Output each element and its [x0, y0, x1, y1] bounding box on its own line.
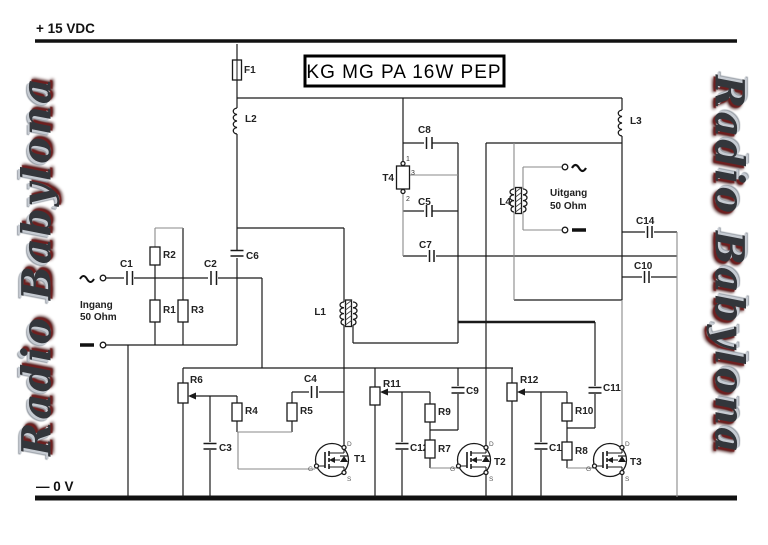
- schematic-title: KG MG PA 16W PEP: [306, 62, 501, 83]
- label-r10: R10: [575, 406, 594, 417]
- transformer-l4: [510, 188, 527, 214]
- label-l3: L3: [630, 116, 642, 127]
- resistor-r2: [150, 247, 160, 265]
- mosfet-t3: [593, 444, 627, 477]
- resistor-r4: [232, 403, 242, 421]
- power-rails: [35, 41, 737, 498]
- capacitor-c13: [535, 444, 548, 450]
- capacitor-c4: [312, 386, 318, 398]
- label-c10: C10: [634, 261, 653, 272]
- capacitor-c6: [231, 251, 244, 257]
- label-c2: C2: [204, 259, 217, 270]
- capacitor-c2: [211, 271, 217, 285]
- resistor-r5: [287, 403, 297, 421]
- label-t4: T4: [382, 173, 394, 184]
- label-c3: C3: [219, 443, 232, 454]
- capacitor-c1: [127, 271, 133, 285]
- label-c1: C1: [120, 259, 133, 270]
- capacitor-c9: [452, 388, 465, 394]
- input-label-line2: 50 Ohm: [80, 312, 117, 323]
- input-label-line1: Ingang: [80, 300, 113, 311]
- fuse-f1: [233, 60, 242, 80]
- label-c8: C8: [418, 125, 431, 136]
- t3-pin-g: G: [586, 466, 591, 473]
- t2-pin-d: D: [489, 441, 494, 448]
- resistor-r9: [425, 404, 435, 422]
- label-t3: T3: [630, 457, 642, 468]
- mosfet-t2: [457, 444, 491, 477]
- rail-label-0v: — 0 V: [36, 479, 74, 494]
- t4-pin-3: 3: [411, 170, 415, 177]
- t3-pin-s: S: [625, 476, 630, 483]
- t3-pin-d: D: [625, 441, 630, 448]
- capacitor-c12: [396, 444, 409, 450]
- resistor-r1: [150, 300, 160, 322]
- label-c5: C5: [418, 197, 431, 208]
- label-r9: R9: [438, 407, 451, 418]
- resistor-r7: [425, 440, 435, 458]
- t1-pin-s: S: [347, 476, 352, 483]
- capacitor-c8: [427, 137, 433, 149]
- label-c9: C9: [466, 386, 479, 397]
- label-c14: C14: [636, 216, 655, 227]
- rail-label-15vdc: + 15 VDC: [36, 21, 95, 36]
- label-r7: R7: [438, 444, 451, 455]
- capacitor-c14: [648, 226, 653, 238]
- schematic-page: Radio Babylona Radio Babylona + 15 VDC —…: [0, 0, 768, 545]
- output-label-line2: 50 Ohm: [550, 201, 587, 212]
- transformer-l1: [340, 300, 357, 327]
- label-r4: R4: [245, 406, 258, 417]
- inductor-l2: [233, 108, 237, 134]
- potentiometer-r6: [178, 383, 196, 403]
- t2-pin-g: G: [450, 466, 455, 473]
- capacitor-c3: [204, 444, 217, 450]
- label-c6: C6: [246, 251, 259, 262]
- output-label-line1: Uitgang: [550, 188, 587, 199]
- circuit-wires: [105, 44, 677, 497]
- label-f1: F1: [244, 65, 256, 76]
- capacitor-c7: [430, 250, 435, 262]
- label-r6: R6: [190, 375, 203, 386]
- label-c11: C11: [603, 383, 621, 394]
- label-r12: R12: [520, 375, 539, 386]
- label-l4: L4: [499, 197, 511, 208]
- t4-pin-2: 2: [406, 196, 410, 203]
- device-t4: [397, 162, 410, 194]
- label-c7: C7: [419, 240, 432, 251]
- capacitor-c11: [589, 388, 602, 394]
- label-t2: T2: [494, 457, 506, 468]
- resistor-r3: [178, 300, 188, 322]
- mosfet-t1: [315, 444, 349, 477]
- label-r11: R11: [383, 379, 401, 390]
- title-box: KG MG PA 16W PEP: [305, 56, 504, 86]
- capacitor-c10: [645, 271, 650, 283]
- resistor-r8: [562, 442, 572, 460]
- inductor-l3: [618, 110, 622, 136]
- label-c4: C4: [304, 374, 317, 385]
- schematic-canvas: + 15 VDC — 0 V KG MG PA 16W PEP: [0, 0, 768, 545]
- label-r8: R8: [575, 446, 588, 457]
- label-r3: R3: [191, 305, 204, 316]
- resistor-r10: [562, 403, 572, 421]
- label-r1: R1: [163, 305, 176, 316]
- t4-pin-1: 1: [406, 156, 410, 163]
- label-l1: L1: [314, 307, 326, 318]
- label-r2: R2: [163, 250, 176, 261]
- t1-pin-g: G: [308, 466, 313, 473]
- label-r5: R5: [300, 406, 313, 417]
- label-t1: T1: [354, 454, 366, 465]
- t1-pin-d: D: [347, 441, 352, 448]
- t2-pin-s: S: [489, 476, 494, 483]
- label-l2: L2: [245, 114, 257, 125]
